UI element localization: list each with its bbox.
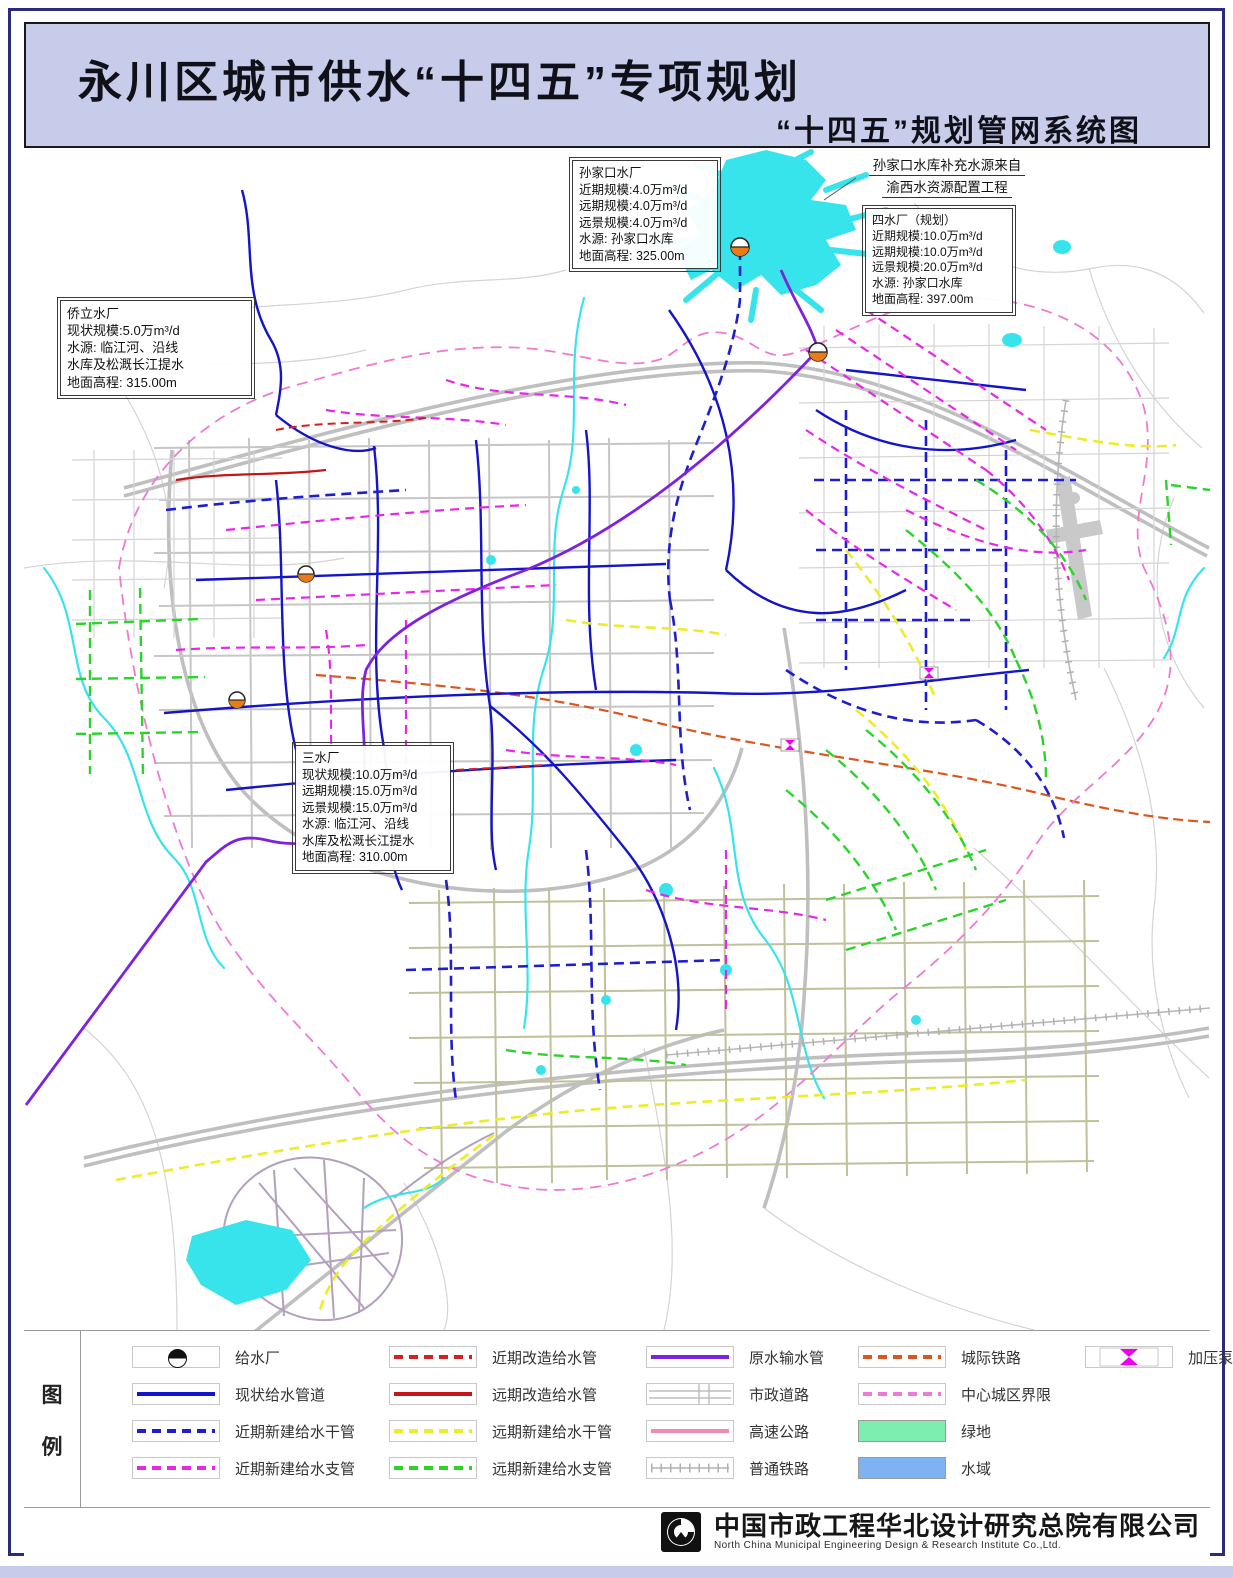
legend-item: 加压泵站 [1085, 1345, 1233, 1369]
plant-info-line: 水库及松溉长江提水 [302, 833, 444, 850]
plant-info-sunjiakou: 孙家口水厂 近期规模:4.0万m³/d 远期规模:4.0万m³/d 远景规模:4… [572, 160, 718, 269]
legend-item: 高速公路 [646, 1419, 824, 1443]
legend-column: 近期改造给水管 远期改造给水管 远期新建给水干管 远期新建给水支管 [389, 1345, 612, 1480]
far-branch-pipe-swatch [389, 1457, 477, 1479]
plant-info-line: 水源: 临江河、沿线 [302, 816, 444, 833]
legend-item: 普通铁路 [646, 1456, 824, 1480]
plant-info-line: 现状规模:5.0万m³/d [67, 322, 245, 339]
map: 孙家口水厂 近期规模:4.0万m³/d 远期规模:4.0万m³/d 远景规模:4… [24, 148, 1210, 1330]
legend-item-label: 远期新建给水干管 [492, 1421, 612, 1442]
legend-item: 远期改造给水管 [389, 1382, 612, 1406]
legend-item-label: 高速公路 [749, 1421, 809, 1442]
plant-info-sishuichang: 四水厂（规划） 近期规模:10.0万m³/d 远期规模:10.0万m³/d 远景… [865, 208, 1013, 313]
legend-item-label: 给水厂 [235, 1347, 280, 1368]
plant-info-line: 地面高程: 325.00m [579, 248, 711, 265]
pipes-new-trunk [166, 250, 1076, 1100]
legend-item-label: 远期改造给水管 [492, 1384, 597, 1405]
plant-info-line: 水源: 孙家口水库 [579, 231, 711, 248]
note-line: 渝西水资源配置工程 [882, 176, 1012, 198]
rebuild-far-pipe-swatch [389, 1383, 477, 1405]
legend-item: 市政道路 [646, 1382, 824, 1406]
company-logo [660, 1511, 702, 1553]
water-area-swatch [858, 1457, 946, 1479]
company-name-en: North China Municipal Engineering Design… [714, 1540, 1200, 1551]
plant-info-line: 现状规模:10.0万m³/d [302, 767, 444, 784]
pipes-existing [164, 190, 1029, 1030]
legend-item-label: 近期新建给水支管 [235, 1458, 355, 1479]
plant-info-qiaoli: 侨立水厂 现状规模:5.0万m³/d 水源: 临江河、沿线 水库及松溉长江提水 … [60, 300, 252, 396]
legend-item-label: 普通铁路 [749, 1458, 809, 1479]
company-name-cn: 中国市政工程华北设计研究总院有限公司 [714, 1513, 1200, 1540]
header-band: 永川区城市供水“十四五”专项规划 “十四五”规划管网系统图 [24, 22, 1210, 148]
plant-info-line: 地面高程: 315.00m [67, 374, 245, 391]
plant-info-line: 远景规模:20.0万m³/d [872, 260, 1006, 276]
plant-info-line: 水源: 临江河、沿线 [67, 339, 245, 356]
legend-label-char: 例 [24, 1431, 80, 1461]
plant-info-line: 近期规模:10.0万m³/d [872, 229, 1006, 245]
plant-info-line: 水源: 孙家口水库 [872, 276, 1006, 292]
plant-info-line: 近期规模:4.0万m³/d [579, 182, 711, 199]
plant-name: 孙家口水厂 [579, 165, 711, 182]
legend-item-label: 城际铁路 [961, 1347, 1021, 1368]
urban-boundary-swatch [858, 1383, 946, 1405]
company-block: 中国市政工程华北设计研究总院有限公司 North China Municipal… [660, 1511, 1200, 1553]
railway [666, 400, 1210, 1055]
plant-info-sanshuichang: 三水厂 现状规模:10.0万m³/d 远期规模:15.0万m³/d 远景规模:1… [295, 745, 451, 871]
legend-item: 现状给水管道 [132, 1382, 355, 1406]
note-line: 孙家口水库补充水源来自 [869, 154, 1026, 176]
water-plant-icon [132, 1346, 220, 1368]
legend-item: 近期改造给水管 [389, 1345, 612, 1369]
legend-item: 近期新建给水支管 [132, 1456, 355, 1480]
footer-band: 中国市政工程华北设计研究总院有限公司 North China Municipal… [24, 1507, 1210, 1556]
legend-item-label: 近期改造给水管 [492, 1347, 597, 1368]
legend-item: 中心城区界限 [858, 1382, 1051, 1406]
expressway-swatch [646, 1420, 734, 1442]
legend-column: 城际铁路 中心城区界限 绿地 水域 [858, 1345, 1051, 1480]
plant-info-line: 远景规模:4.0万m³/d [579, 215, 711, 232]
legend-item-label: 近期新建给水干管 [235, 1421, 355, 1442]
legend-item-label: 原水输水管 [749, 1347, 824, 1368]
plant-name: 侨立水厂 [67, 305, 245, 322]
legend-item: 水域 [858, 1456, 1051, 1480]
plant-info-line: 远期规模:10.0万m³/d [872, 245, 1006, 261]
legend-column: 加压泵站 [1085, 1345, 1233, 1480]
plant-info-line: 远期规模:4.0万m³/d [579, 198, 711, 215]
south-grid [409, 880, 1099, 1183]
legend-column: 原水输水管 市政道路 高速公路 普通铁路 [646, 1345, 824, 1480]
legend-item: 城际铁路 [858, 1345, 1051, 1369]
legend-item-label: 中心城区界限 [961, 1384, 1051, 1405]
water-source-note: 孙家口水库补充水源来自 渝西水资源配置工程 [852, 154, 1042, 198]
pump-station-icon [1085, 1346, 1173, 1368]
legend-item: 绿地 [858, 1419, 1051, 1443]
legend-item: 给水厂 [132, 1345, 355, 1369]
existing-pipe-swatch [132, 1383, 220, 1405]
legend-item-label: 水域 [961, 1458, 991, 1479]
legend-item-label: 现状给水管道 [235, 1384, 325, 1405]
legend-item-label: 绿地 [961, 1421, 991, 1442]
legend-item-label: 加压泵站 [1188, 1347, 1233, 1368]
legend-item: 原水输水管 [646, 1345, 824, 1369]
legend-column: 给水厂 现状给水管道 近期新建给水干管 近期新建给水支管 [132, 1345, 355, 1480]
raw-water-pipe-swatch [646, 1346, 734, 1368]
new-branch-pipe-swatch [132, 1457, 220, 1479]
pipes-longterm-branch [76, 480, 1210, 1065]
greenspace-swatch [858, 1420, 946, 1442]
plant-info-line: 远景规模:15.0万m³/d [302, 800, 444, 817]
municipal-road-icon [646, 1383, 734, 1405]
legend-label-cell: 图 例 [24, 1331, 81, 1508]
pipes-new-branch [176, 310, 1086, 1010]
legend-label-char: 图 [24, 1379, 80, 1409]
water-plant-icons [229, 238, 827, 708]
legend-item-label: 市政道路 [749, 1384, 809, 1405]
plant-name: 四水厂（规划） [872, 213, 1006, 229]
rebuild-near-pipe-swatch [389, 1346, 477, 1368]
intercity-railway-swatch [858, 1346, 946, 1368]
plant-info-line: 地面高程: 397.00m [872, 292, 1006, 308]
plant-info-line: 远期规模:15.0万m³/d [302, 783, 444, 800]
plant-info-line: 水库及松溉长江提水 [67, 356, 245, 373]
legend-item: 远期新建给水干管 [389, 1419, 612, 1443]
legend-panel: 图 例 给水厂 现状给水管道 近期新建给水干管 近期新建给水 [24, 1330, 1210, 1507]
far-trunk-pipe-swatch [389, 1420, 477, 1442]
page-title: 永川区城市供水“十四五”专项规划 [78, 46, 802, 110]
plant-info-line: 地面高程: 310.00m [302, 849, 444, 866]
bottom-strip [0, 1566, 1233, 1578]
water-bodies [186, 150, 1071, 1305]
legend-item: 远期新建给水支管 [389, 1456, 612, 1480]
page-subtitle: “十四五”规划管网系统图 [776, 106, 1142, 150]
plant-name: 三水厂 [302, 750, 444, 767]
ordinary-railway-icon [646, 1457, 734, 1479]
plan-sheet: 永川区城市供水“十四五”专项规划 “十四五”规划管网系统图 [0, 0, 1233, 1578]
legend-item-label: 远期新建给水支管 [492, 1458, 612, 1479]
legend-item: 近期新建给水干管 [132, 1419, 355, 1443]
new-trunk-pipe-swatch [132, 1420, 220, 1442]
